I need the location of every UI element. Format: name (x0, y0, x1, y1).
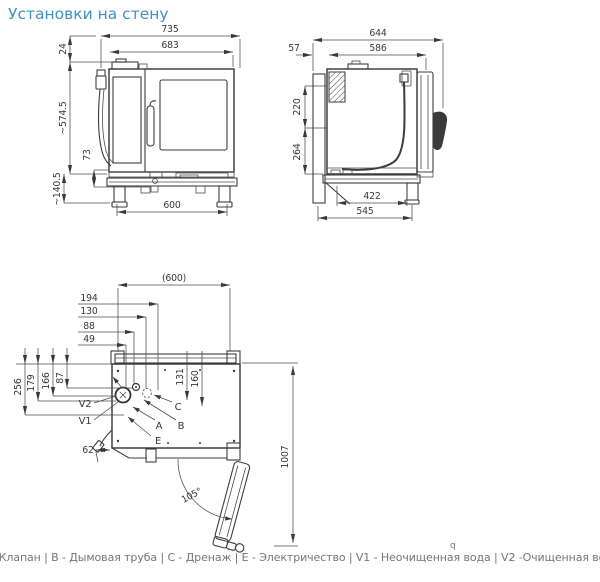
front-stand-height-dim: ~140.5 (52, 172, 63, 205)
top-view-dimensions: (600) 194 130 88 49 256 179 166 87 62 (13, 273, 298, 546)
installation-drawing-page: Установки на стену (0, 0, 600, 582)
door-angle-dim: 105° (180, 486, 204, 506)
side-wall-gap-dim: 57 (288, 43, 300, 54)
side-lower-height-dim: 264 (292, 143, 303, 160)
wall-installation-diagram: Установки на стену (0, 0, 600, 582)
label-a: A (156, 421, 163, 432)
side-upper-height-dim: 220 (292, 98, 303, 115)
side-base-depth-dim: 545 (356, 206, 373, 217)
top-hose-62-dim: 62 (82, 445, 93, 456)
label-c: C (175, 402, 182, 413)
footnote-q: q (450, 541, 456, 551)
side-body-depth-dim: 586 (369, 43, 386, 54)
label-v2: V2 (79, 399, 92, 410)
side-view-dimensions: 644 586 57 220 264 422 545 (288, 28, 443, 221)
side-total-depth-dim: 644 (369, 28, 386, 39)
front-view-outline (96, 59, 237, 207)
drain-connection-circle (143, 389, 152, 398)
side-frame-depth-dim: 422 (363, 191, 380, 202)
door-handle (433, 112, 447, 150)
page-title: Установки на стену (8, 5, 169, 23)
top-left-179-dim: 179 (26, 374, 37, 391)
label-b: B (178, 421, 185, 432)
top-conn-49-dim: 49 (83, 334, 95, 345)
front-drain-height-dim: 73 (82, 149, 93, 161)
vent-grid (329, 72, 345, 102)
front-top-offset-dim: 24 (58, 43, 69, 55)
top-conn-88-dim: 88 (83, 321, 95, 332)
top-rail-131-dim: 131 (175, 368, 186, 385)
connection-labels: V2 V1 A B C E (79, 395, 185, 447)
legend-line: A - Клапан | B - Дымовая труба | C - Дре… (0, 551, 600, 564)
label-v1: V1 (79, 416, 92, 427)
side-view-outline (313, 61, 447, 204)
door-swing-arc (178, 459, 232, 519)
top-left-87-dim: 87 (55, 372, 66, 384)
front-body-width-dim: 683 (161, 40, 178, 51)
front-leg-span-dim: 600 (163, 200, 180, 211)
top-conn-130-dim: 130 (80, 306, 97, 317)
open-door (212, 461, 265, 553)
top-door-clearance-dim: 1007 (280, 445, 291, 468)
front-total-height-dim: ~574.5 (58, 101, 69, 134)
top-width-ref-dim: (600) (162, 273, 186, 284)
top-left-256-dim: 256 (13, 378, 24, 395)
label-e: E (155, 436, 161, 447)
front-view-dimensions: 735 683 24 ~574.5 73 ~140.5 600 (52, 24, 240, 216)
top-conn-194-dim: 194 (80, 293, 97, 304)
top-rail-160-dim: 160 (190, 370, 201, 387)
top-left-166-dim: 166 (41, 372, 52, 389)
front-total-width-dim: 735 (161, 24, 178, 35)
